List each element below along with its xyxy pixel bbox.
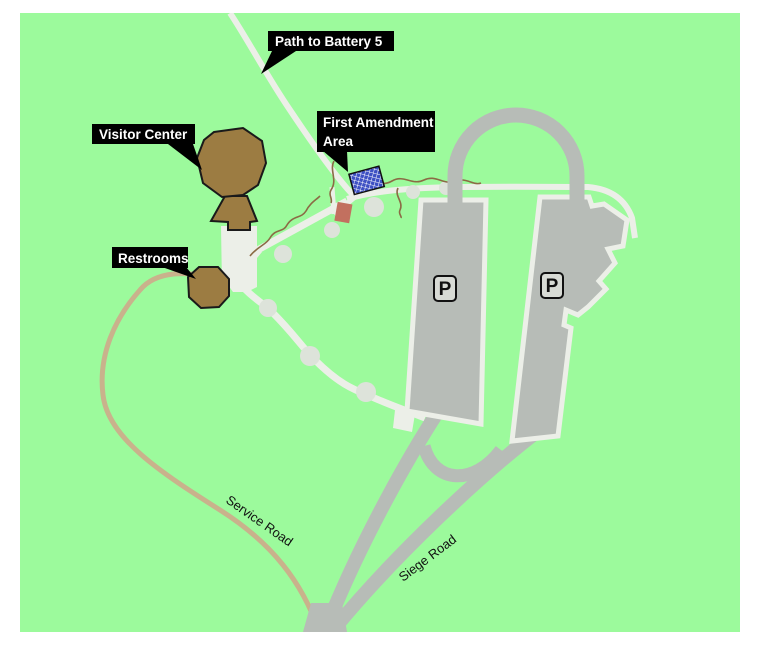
walkway-circle xyxy=(300,346,320,366)
callout-label: Restrooms xyxy=(118,251,189,266)
visitor-center-building xyxy=(197,128,266,197)
walkway-circle xyxy=(324,222,340,238)
callout-label: Area xyxy=(323,134,354,149)
map-grass-background xyxy=(20,13,740,632)
callout-label: Visitor Center xyxy=(99,127,188,142)
restrooms-building xyxy=(188,267,229,308)
parking-icon: P xyxy=(546,276,559,297)
parking-sign-left: P xyxy=(434,276,456,301)
walkway-circle xyxy=(259,299,277,317)
parking-sign-right: P xyxy=(541,273,563,298)
walkway-circle xyxy=(364,197,384,217)
walkway-circle xyxy=(274,245,292,263)
callout-label: Path to Battery 5 xyxy=(275,34,383,49)
park-map-canvas: P P Service Road Siege Road Path to Batt… xyxy=(0,0,765,648)
park-map: P P Service Road Siege Road Path to Batt… xyxy=(0,0,765,648)
walkway-circle xyxy=(406,185,420,199)
walkway-circle xyxy=(356,382,376,402)
parking-icon: P xyxy=(439,279,452,300)
callout-label: First Amendment xyxy=(323,115,434,130)
left-parking-lot xyxy=(407,200,486,424)
